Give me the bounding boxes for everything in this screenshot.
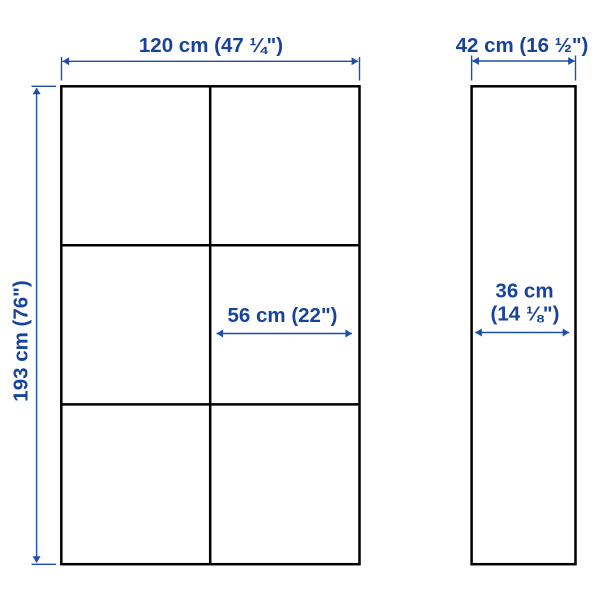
svg-text:(14 ⅛"): (14 ⅛") — [491, 303, 560, 326]
svg-text:193 cm (76"): 193 cm (76") — [10, 280, 33, 401]
svg-text:120 cm (47 ¼"): 120 cm (47 ¼") — [139, 34, 283, 57]
svg-text:56 cm (22"): 56 cm (22") — [228, 304, 338, 327]
svg-text:36 cm: 36 cm — [495, 279, 553, 302]
svg-text:42 cm (16 ½"): 42 cm (16 ½") — [456, 34, 589, 57]
